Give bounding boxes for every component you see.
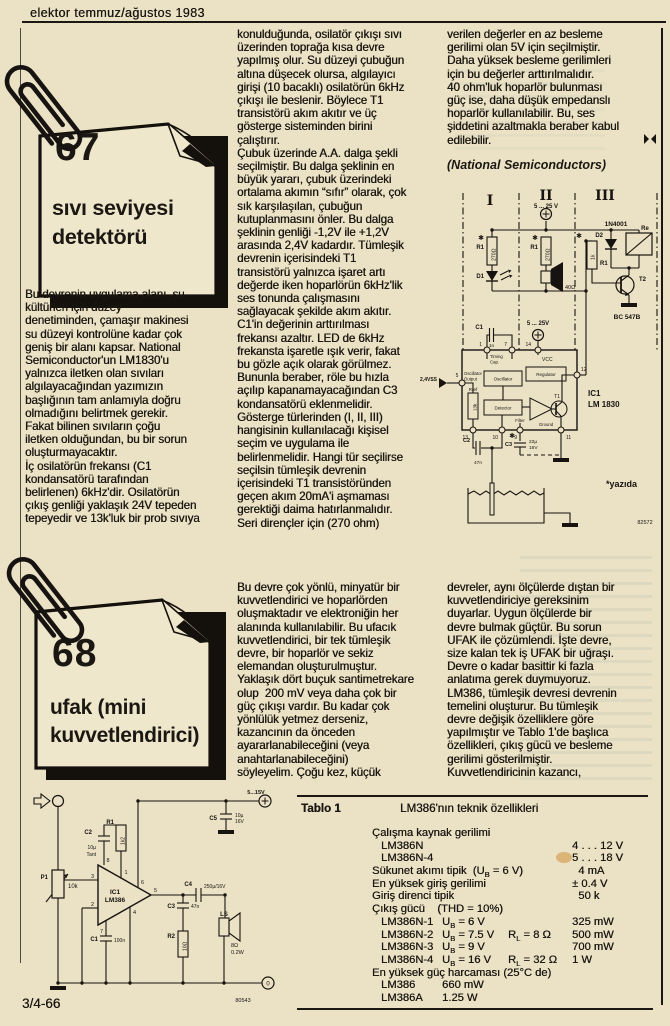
paperclip-icon [0, 532, 108, 682]
table-row: Sükunet akımı tipik (UB = 6 V) 4 mA [297, 865, 657, 878]
label-ls: LS [220, 912, 228, 918]
table-row: LM386N-3UB = 9 V700 mW [297, 941, 657, 954]
label-pin11: 11 [566, 435, 571, 441]
magazine-page: elektor temmuz/ağustos 1983 67 sıvı sevi… [0, 0, 670, 1026]
label-pin14: 14 [525, 342, 531, 348]
label-pin5: 5 [456, 373, 459, 379]
label-c3: C3 [505, 442, 512, 448]
table-cell-name: En yüksek giriş gerilimi [372, 878, 486, 890]
label-r1a-value: 270Ω [492, 248, 498, 261]
page-header-title: elektor temmuz/ağustos 1983 [30, 6, 205, 20]
label-r1c-value: 1k [591, 254, 597, 260]
table-cell-name: LM386A [381, 992, 423, 1004]
label-pin7: 7 [100, 929, 103, 935]
figure-number: 80543 [235, 998, 250, 1004]
table-cell-name: LM386N [381, 840, 423, 852]
table-cell-name: Çıkış gücü (THD = 10%) [372, 903, 503, 915]
table-cell-condition1: 660 mW [442, 979, 484, 991]
ground-icon [553, 458, 569, 462]
label-c5: C5 [209, 816, 217, 822]
article67-column2: konulduğunda, osilatör çıkışı sıvı üzeri… [237, 28, 442, 530]
label-star: ✱ [576, 232, 582, 240]
article67-title: sıvı seviyesi detektörü [52, 194, 174, 252]
label-section-3: III [595, 188, 615, 204]
label-c4-value: 250µ/16V [204, 884, 226, 890]
label-c4: C4 [184, 882, 192, 888]
table-row: LM386N-2UB = 7.5 VRL = 8 Ω500 mW [297, 929, 657, 942]
table-cell-name: LM386 [381, 979, 415, 991]
label-filter: Filter [515, 418, 525, 423]
label-pin1: 1 [479, 342, 482, 348]
probe [490, 483, 494, 515]
speaker-cone [229, 913, 240, 941]
article68-column3: devreler, aynı ölçülerde dıştan bir kuvv… [447, 581, 655, 779]
table-cell-value: 4 . . . 12 V [572, 840, 623, 852]
label-p1: P1 [41, 875, 49, 881]
label-supply-top: 5 ... 25 V [534, 204, 558, 210]
table-cell-value: 325 mW [572, 916, 614, 928]
article68-column2: Bu devre çok yönlü, minyatür bir kuvvetl… [237, 581, 442, 779]
diode-d2 [605, 239, 617, 249]
circuit-labels: I II III 5 ... 25 V ✱ R1 270Ω ✱ R1 270Ω … [420, 188, 653, 526]
transistor-t2 [616, 276, 634, 294]
label-ic-type: LM386 [105, 897, 126, 904]
label-c5-value2: 16V [235, 819, 245, 825]
label-timing: Timing [490, 354, 503, 359]
label-section-1: I [487, 193, 494, 209]
circuit-lm386: P1 10k C2 10µ Tant R1 1k2 8 3 2 7 1 6 5 … [18, 788, 293, 1016]
table-row: En yüksek giriş gerilimi± 0.4 V [297, 878, 657, 891]
label-c3-value: 47n [191, 904, 200, 910]
table-row: LM386N-45 . . . 18 V [297, 852, 657, 865]
label-d1: D1 [476, 274, 484, 280]
table-cell-name: Çalışma kaynak gerilimi [372, 827, 490, 839]
table-cell-value: ± 0.4 V [572, 878, 607, 890]
speaker-ls [219, 918, 229, 936]
table-row: LM386N-1UB = 6 V325 mW [297, 916, 657, 929]
label-c1: C1 [475, 325, 483, 331]
label-zero: 0 [266, 982, 270, 988]
label-t2-type: BC 547B [614, 314, 641, 321]
article68-title: ufak (mini kuvvetlendirici) [50, 694, 199, 750]
label-c2-value1: 10µ [88, 845, 97, 851]
label-r1b: R1 [530, 245, 538, 251]
label-supply: 5...15V [247, 790, 265, 796]
label-pin2: 2 [91, 902, 94, 908]
label-regulator: Regulator [536, 372, 556, 377]
label-detector: Detector [494, 406, 512, 411]
table-cell-value: 5 . . . 18 V [572, 852, 623, 864]
table-cell-value: 50 k [572, 890, 599, 902]
label-r2: R2 [167, 934, 175, 940]
label-timing-cap: Cap. [490, 360, 499, 365]
article67-column3: verilen değerler en az besleme gerilimi … [447, 28, 655, 147]
label-speaker-value: 40Ω [565, 285, 575, 291]
label-c2-value: 47n [474, 460, 482, 466]
label-c2-value2: Tant [87, 852, 97, 858]
label-r1c: R1 [600, 261, 608, 267]
table-row: LM386A1.25 W [297, 992, 657, 1005]
label-osc-out1: Oscillator [464, 371, 482, 376]
vss-marker [439, 378, 447, 388]
label-relay: Re [641, 226, 649, 232]
label-star: ✱ [478, 234, 484, 242]
potentiometer-p1 [52, 870, 64, 898]
figure-number: 82572 [637, 520, 652, 526]
label-c1-value: 100n [114, 938, 125, 944]
article67-column1: Bu devrenin uygulama alanı, su kültürler… [25, 288, 230, 526]
label-c1: C1 [90, 937, 98, 943]
label-ic-ref: IC1 [110, 889, 121, 896]
table-row: En yüksek güç harcaması (25°C de) [297, 967, 657, 980]
ground-icon [218, 830, 234, 834]
table-cell-condition1: 1.25 W [442, 992, 477, 1004]
label-rref-value: 13k [473, 403, 478, 411]
table-label: Tablo 1 [301, 802, 341, 815]
label-r1: R1 [106, 820, 114, 826]
table-tablo1: Tablo 1 LM386'nın teknik özellikleri Çal… [297, 795, 657, 1015]
label-c3-value1: 22µ [529, 439, 537, 445]
label-ic-ref: IC1 [588, 389, 601, 398]
label-r1b-value: 270Ω [546, 248, 552, 261]
label-c2: C2 [84, 830, 92, 836]
table-row: Giriş direnci tipik 50 k [297, 890, 657, 903]
label-osc-out2: Output [464, 377, 478, 382]
label-pin3: 3 [91, 874, 94, 880]
label-t2: T2 [639, 277, 647, 283]
article67-credit: (National Semiconductors) [447, 158, 606, 172]
label-pin6: 6 [141, 880, 144, 886]
label-pin8: 8 [106, 858, 109, 864]
table-title: LM386'nın teknik özellikleri [400, 802, 538, 815]
label-section-2: II [539, 188, 552, 204]
label-r1-value: 1k2 [121, 837, 127, 845]
label-r2-value: 10Ω [183, 941, 189, 951]
label-pin5: 5 [154, 888, 157, 894]
label-vss: 2,4VSS [420, 377, 438, 383]
label-pin1: 1 [124, 870, 127, 876]
table-row: Çıkış gücü (THD = 10%) [297, 903, 657, 916]
table-row: LM386N4 . . . 12 V [297, 840, 657, 853]
label-pin12: 12 [581, 367, 587, 373]
table-cell-name: LM386N-1 [381, 916, 433, 928]
ground-icon [562, 523, 578, 527]
label-oscillator: Oscillator [494, 377, 513, 382]
input-terminal [53, 796, 64, 807]
speaker-cone [551, 262, 563, 292]
label-d2: D2 [595, 233, 603, 239]
led-d1 [486, 271, 498, 281]
label-ls-value2: 0.2W [231, 950, 245, 956]
label-r1a: R1 [476, 245, 484, 251]
table-cell-name: LM386N-3 [381, 941, 433, 953]
ground-icon [50, 986, 66, 990]
label-ls-value1: 8Ω [231, 943, 238, 949]
ground-icon [621, 303, 637, 307]
table-row: Çalışma kaynak gerilimi [297, 827, 657, 840]
table-rows: Çalışma kaynak gerilimiLM386N4 . . . 12 … [297, 827, 657, 1005]
table-cell-value: 4 mA [572, 865, 604, 877]
label-c2: C2 [463, 438, 470, 444]
label-rref: Rref [469, 387, 478, 392]
speaker-icon [541, 271, 551, 283]
label-c3-value2: 16V [529, 445, 538, 451]
table-cell-name: LM386N-4 [381, 852, 433, 864]
label-star: ✱ [532, 234, 538, 242]
amplifier-triangle [530, 398, 552, 420]
label-star: ✱ [509, 432, 515, 440]
label-pin4: 4 [133, 910, 136, 916]
table-cell-name: LM386N-2 [381, 929, 433, 941]
table-cell-name: En yüksek güç harcaması (25°C de) [372, 967, 551, 979]
label-t1: T1 [554, 394, 560, 400]
label-footnote: *yazıda [606, 479, 638, 489]
label-c1-value: 1n [489, 343, 495, 349]
table-bottom-rule [297, 1008, 653, 1010]
table-row: LM386660 mW [297, 979, 657, 992]
label-p1-value: 10k [68, 884, 79, 890]
label-c3: C3 [167, 904, 175, 910]
label-pin10: 10 [492, 435, 498, 441]
label-pin7: 7 [504, 342, 507, 348]
label-vcc: VCC [542, 357, 553, 363]
table-cell-value: 500 mW [572, 929, 614, 941]
table-cell-name: LM386N-4 [381, 954, 433, 966]
label-d2-type: 1N4001 [605, 221, 628, 228]
table-top-rule [297, 795, 648, 797]
end-of-article-icon [644, 134, 656, 144]
label-ic-type: LM 1830 [588, 400, 620, 409]
label-ic-ground: Ground [539, 422, 554, 427]
table-cell-name: Giriş direnci tipik [372, 890, 454, 902]
page-number: 3/4-66 [22, 996, 60, 1011]
table-cell-value: 700 mW [572, 941, 614, 953]
circuit-labels: P1 10k C2 10µ Tant R1 1k2 8 3 2 7 1 6 5 … [41, 790, 271, 1004]
table-cell-value: 1 W [572, 954, 592, 966]
header-rule [22, 21, 666, 23]
paperclip-icon [0, 40, 106, 190]
table-row: LM386N-4UB = 16 VRL = 32 Ω1 W [297, 954, 657, 967]
label-supply-mid: 5 ... 25V [527, 321, 549, 327]
circuit-lm1830: I II III 5 ... 25 V ✱ R1 270Ω ✱ R1 270Ω … [420, 183, 665, 535]
